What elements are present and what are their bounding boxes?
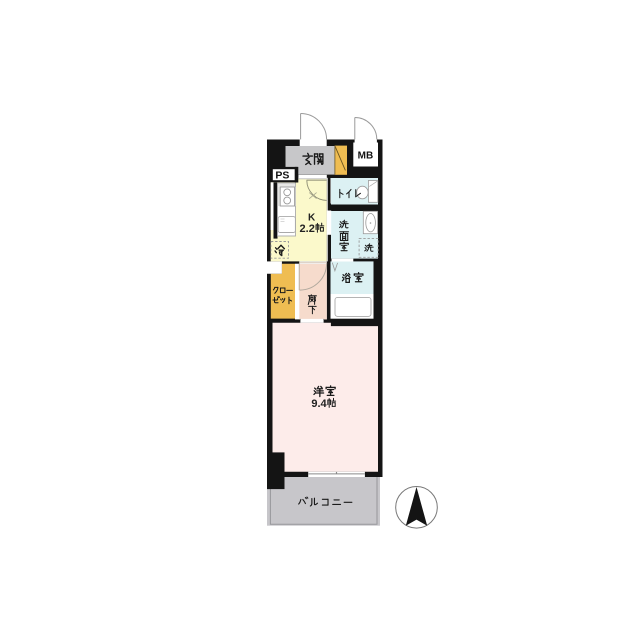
- svg-text:K: K: [308, 212, 316, 223]
- svg-text:MB: MB: [358, 151, 374, 162]
- svg-text:2.2: 2.2: [300, 223, 315, 235]
- svg-text:9.4: 9.4: [311, 398, 327, 410]
- svg-text:PS: PS: [275, 170, 289, 182]
